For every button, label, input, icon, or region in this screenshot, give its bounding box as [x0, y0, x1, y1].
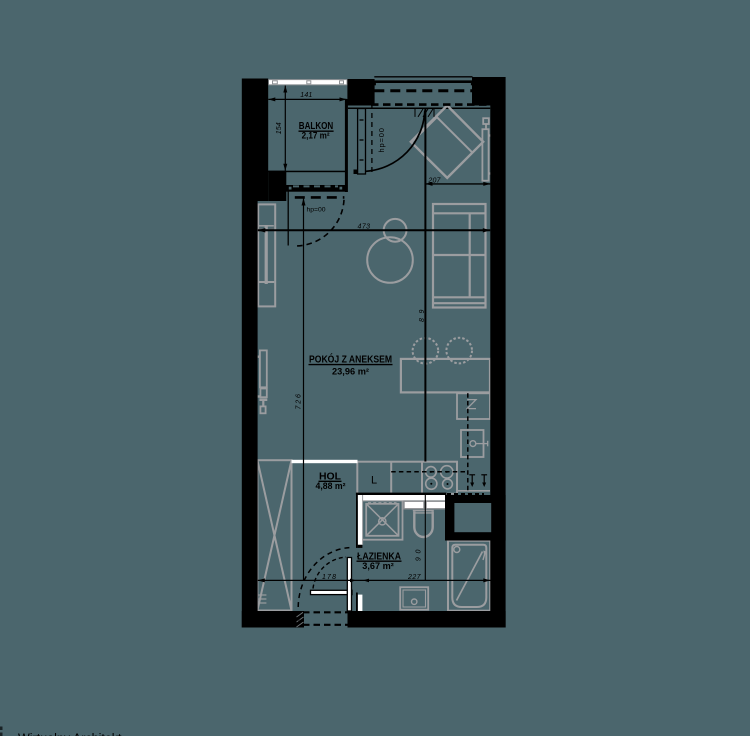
svg-text:227: 227 [407, 574, 422, 581]
svg-text:3,67 m²: 3,67 m² [362, 561, 394, 571]
svg-text:23,96 m²: 23,96 m² [332, 367, 369, 377]
svg-text:141: 141 [300, 92, 312, 99]
svg-text:4,88 m²: 4,88 m² [316, 481, 346, 491]
svg-text:726: 726 [296, 394, 303, 410]
svg-text:473: 473 [358, 223, 371, 230]
svg-text:154: 154 [276, 122, 283, 134]
svg-text:L: L [371, 474, 377, 486]
svg-text:178: 178 [322, 574, 336, 581]
svg-text:207: 207 [427, 178, 441, 185]
svg-text:Wirtualny Architekt: Wirtualny Architekt [18, 731, 122, 736]
svg-text:hp=00: hp=00 [307, 206, 326, 213]
svg-text:2,17 m²: 2,17 m² [302, 131, 330, 141]
svg-text:hp=00: hp=00 [377, 128, 386, 153]
svg-text:POKÓJ Z ANEKSEM: POKÓJ Z ANEKSEM [309, 353, 392, 366]
